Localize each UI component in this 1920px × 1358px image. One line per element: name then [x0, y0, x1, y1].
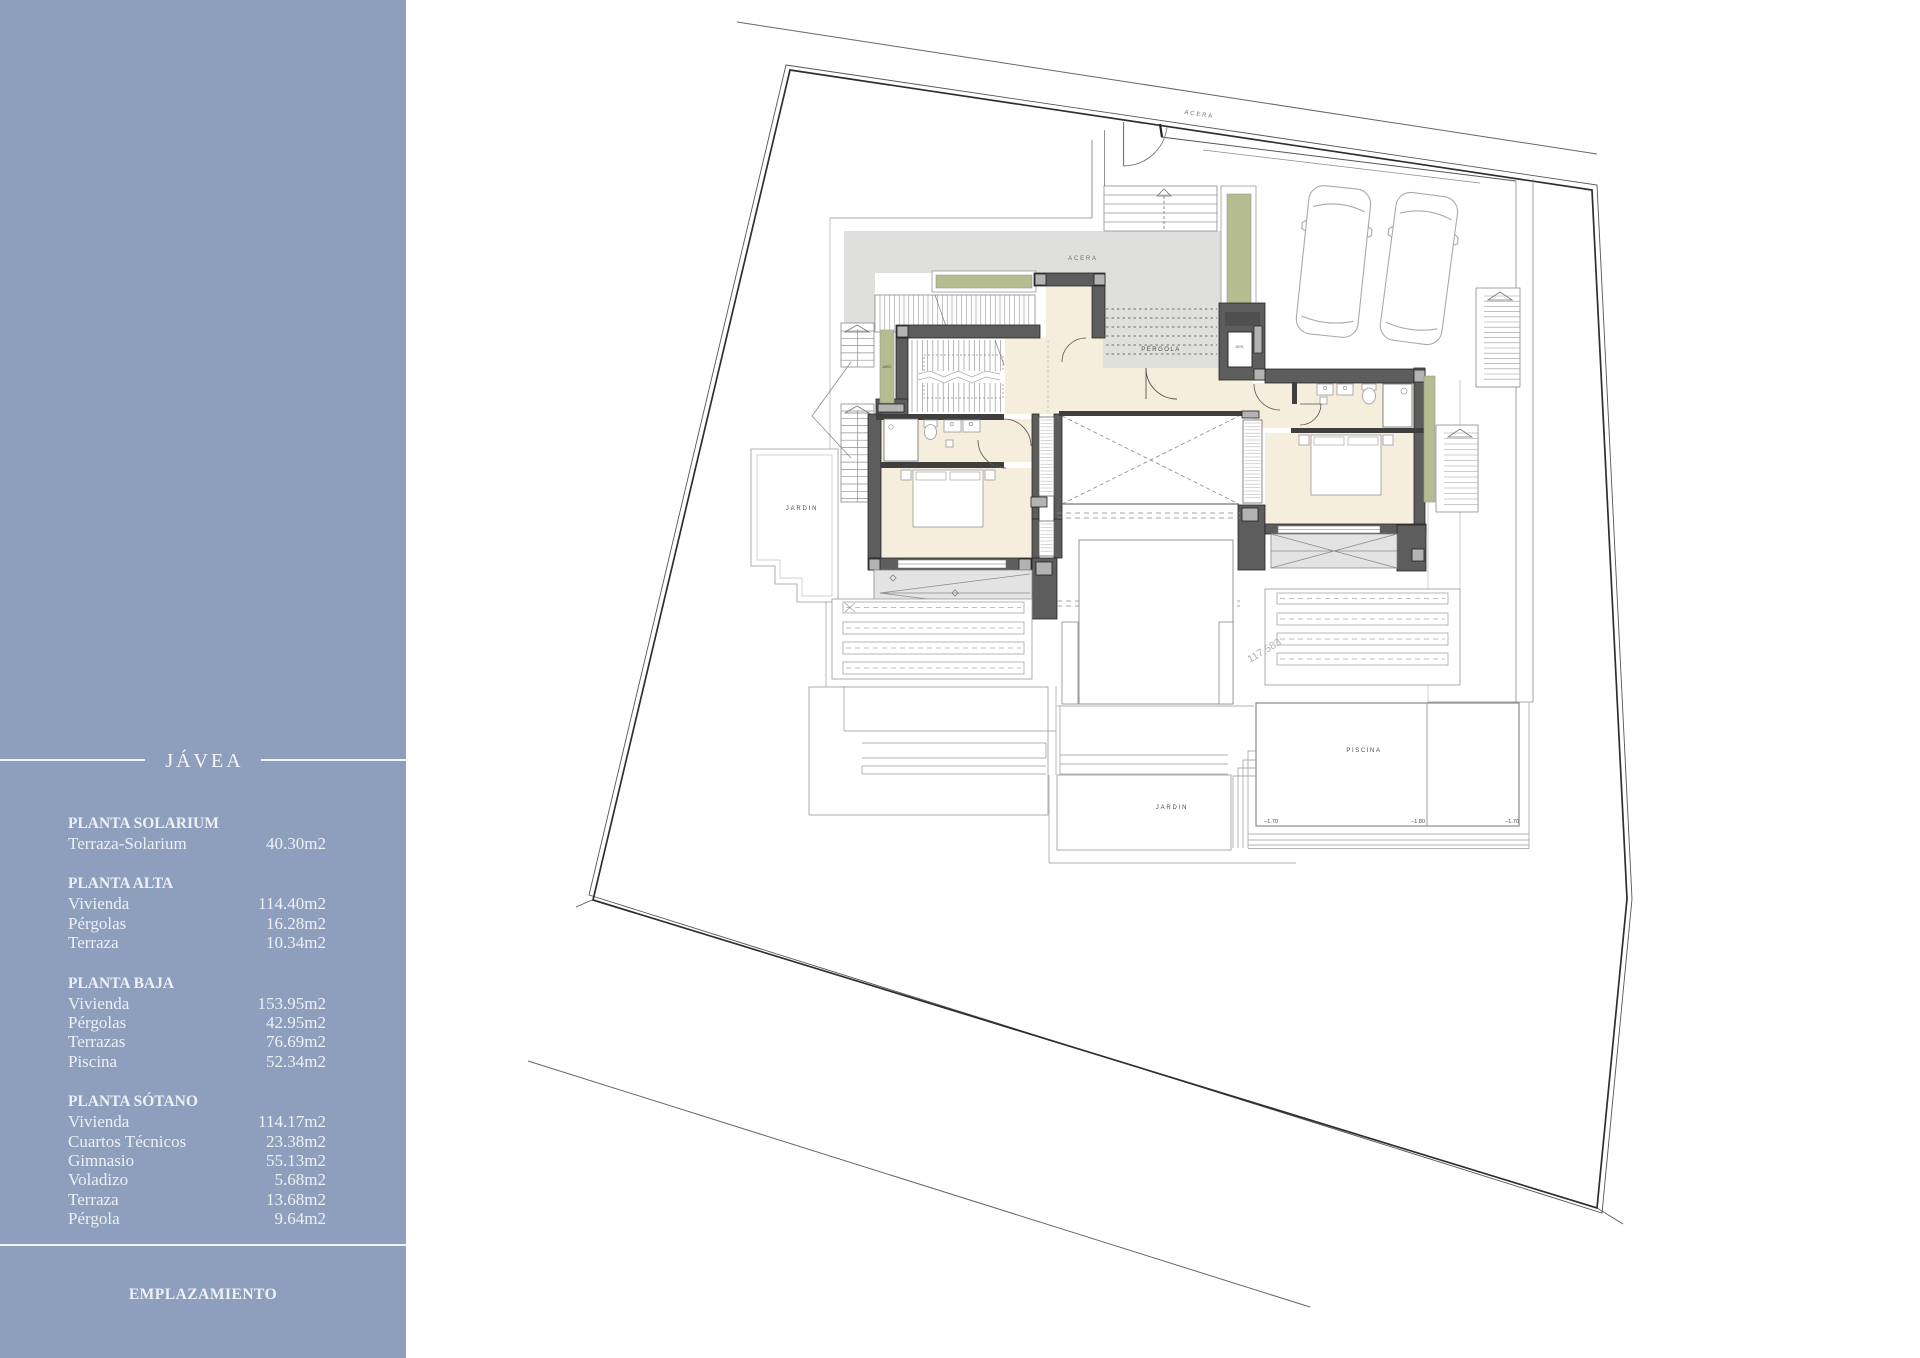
svg-text:–1.70: –1.70	[1505, 819, 1519, 825]
svg-text:–1.70: –1.70	[1264, 819, 1278, 825]
svg-text:JARD.: JARD.	[882, 365, 892, 369]
svg-text:–1.80: –1.80	[1411, 819, 1425, 825]
svg-text:JARDIN: JARDIN	[1156, 805, 1188, 811]
svg-text:ACERA: ACERA	[1184, 110, 1214, 120]
svg-text:JARDIN: JARDIN	[786, 506, 818, 512]
svg-text:PÉRGOLA: PÉRGOLA	[1141, 346, 1181, 353]
svg-text:ACERA: ACERA	[1068, 256, 1098, 262]
svg-text:PISCINA: PISCINA	[1346, 748, 1381, 754]
svg-text:arm.: arm.	[1236, 344, 1245, 349]
